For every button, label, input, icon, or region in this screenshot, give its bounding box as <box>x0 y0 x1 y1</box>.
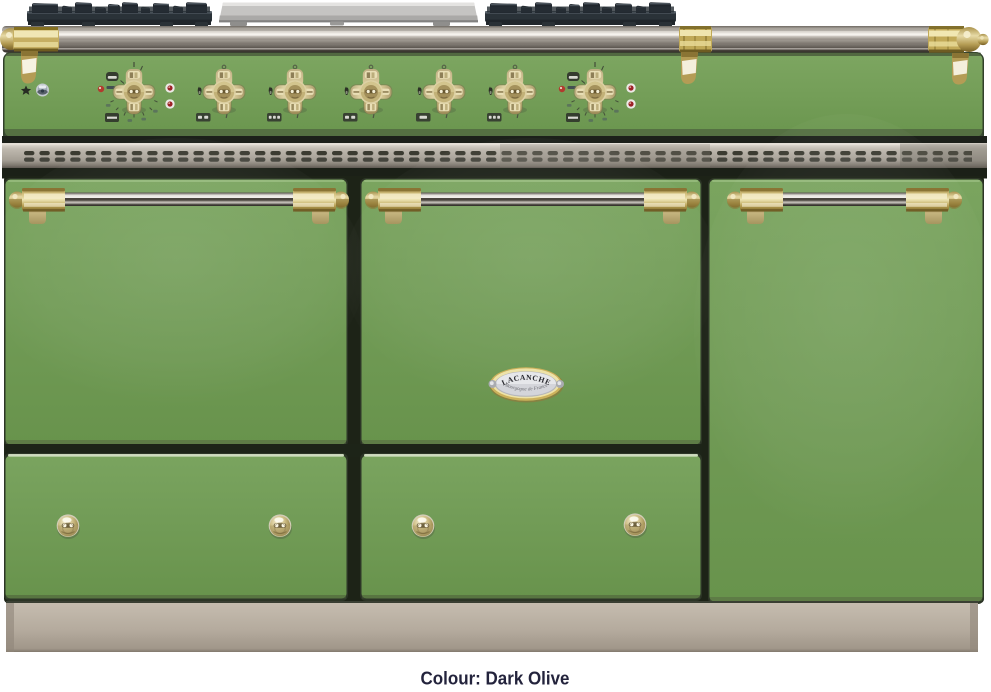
svg-text:Colour: Dark Olive: Colour: Dark Olive <box>421 668 570 688</box>
